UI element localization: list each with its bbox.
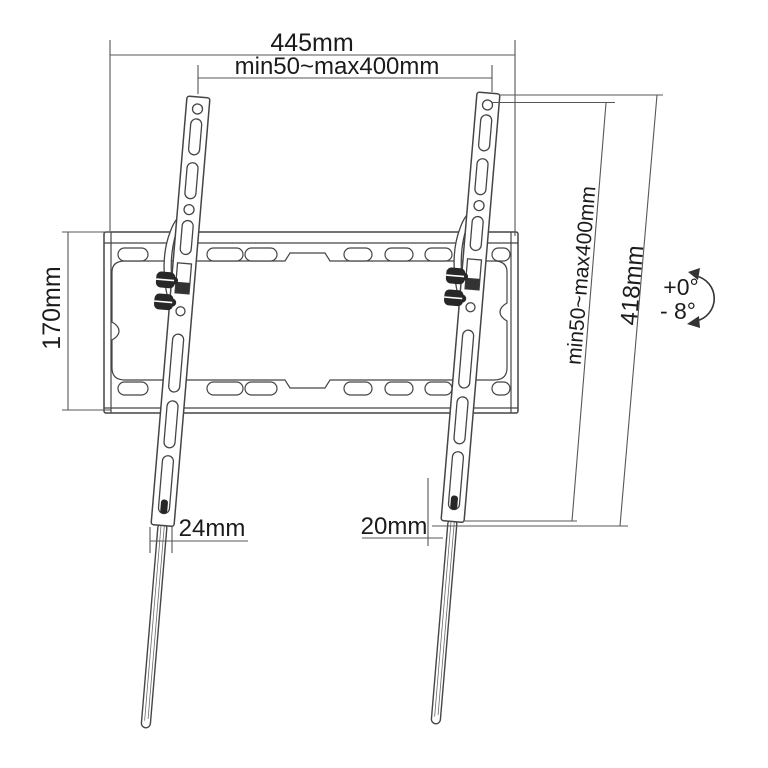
- plate-slot: [245, 382, 277, 395]
- tv-mount-technical-drawing-page: 445mm min50~max400mm 170mm min50~max400m…: [0, 0, 768, 768]
- dim-vesa-horizontal-label: min50~max400mm: [235, 53, 440, 80]
- dim-offset-right-label: 20mm: [361, 513, 428, 540]
- plate-slot: [385, 248, 413, 261]
- plate-slot: [385, 382, 413, 395]
- plate-slot: [207, 248, 243, 261]
- tv-mount-technical-drawing: 445mm min50~max400mm 170mm min50~max400m…: [0, 0, 768, 768]
- plate-slot: [118, 382, 148, 395]
- dim-bracket-height-label: 418mm: [616, 244, 650, 326]
- dim-offset-left-label: 24mm: [179, 515, 246, 542]
- plate-slot: [425, 248, 452, 261]
- tilt-up-label: +0°: [663, 274, 698, 300]
- tilt-annotation: +0° - 8°: [660, 268, 714, 328]
- plate-slot: [344, 248, 372, 261]
- tilt-down-label: - 8°: [660, 298, 696, 324]
- dim-vesa-vertical-label: min50~max400mm: [563, 185, 601, 365]
- plate-slot: [492, 382, 510, 395]
- plate-slot: [344, 382, 372, 395]
- plate-slot: [207, 382, 243, 395]
- dim-plate-height-label: 170mm: [38, 266, 66, 349]
- plate-slot: [118, 248, 148, 261]
- plate-slot: [492, 248, 510, 261]
- plate-slot: [245, 248, 277, 261]
- plate-slot: [425, 382, 452, 395]
